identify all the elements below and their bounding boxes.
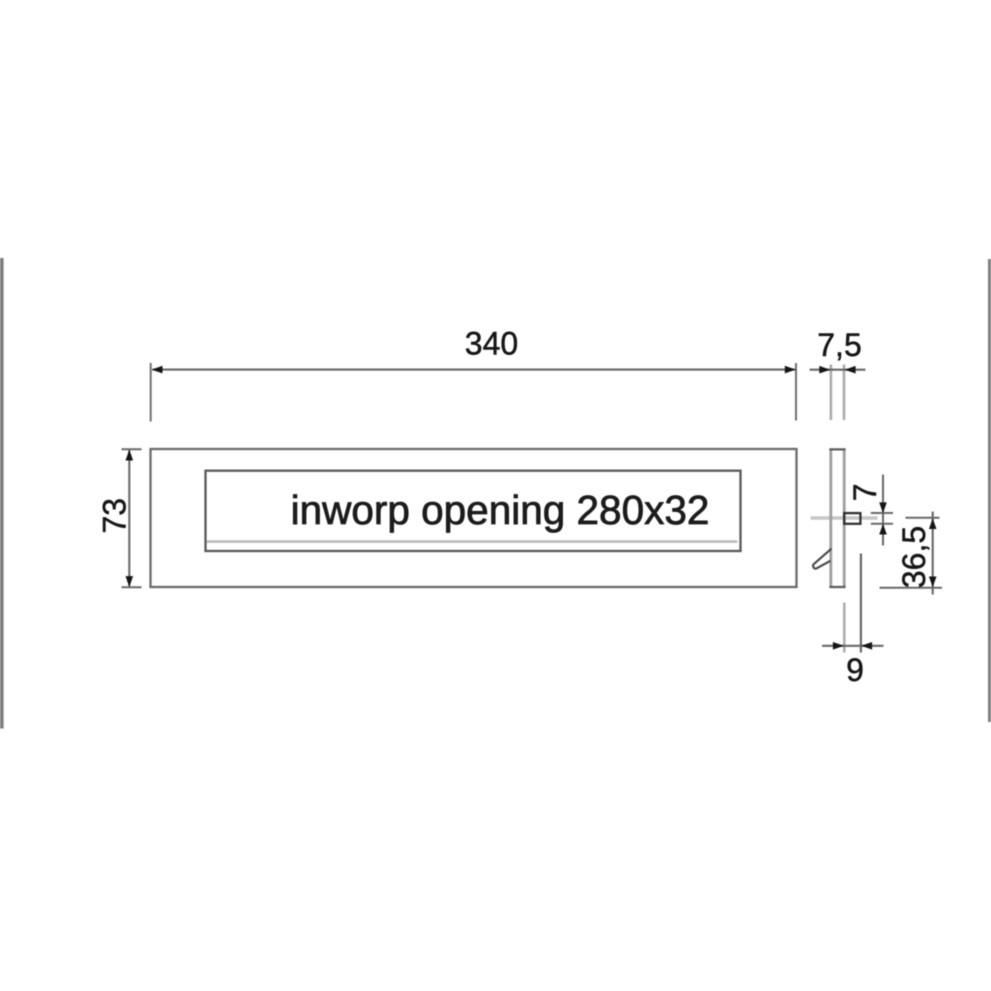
svg-text:73: 73 [97, 498, 133, 534]
svg-text:inworp opening 280x32: inworp opening 280x32 [291, 487, 710, 533]
svg-text:7,5: 7,5 [817, 327, 861, 363]
svg-text:9: 9 [846, 652, 864, 688]
svg-text:340: 340 [465, 326, 518, 362]
svg-text:7: 7 [847, 483, 883, 501]
svg-text:36,5: 36,5 [896, 526, 932, 588]
